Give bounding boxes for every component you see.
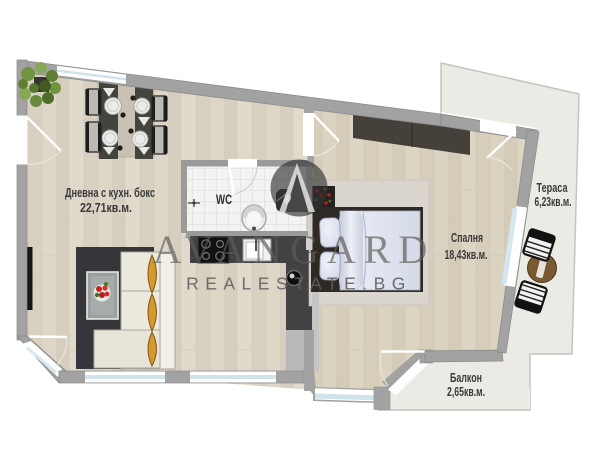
svg-text:WC: WC [216,191,232,207]
svg-text:18,43кв.м.: 18,43кв.м. [445,248,488,262]
svg-text:2,65кв.м.: 2,65кв.м. [447,385,485,399]
svg-text:6,23кв.м.: 6,23кв.м. [535,195,572,209]
svg-text:AVANGARD: AVANGARD [153,227,436,272]
svg-text:Балкон: Балкон [450,371,482,385]
svg-text:Спалня: Спалня [451,231,483,245]
svg-text:22,71кв.м.: 22,71кв.м. [80,201,132,215]
svg-text:Дневна с кухн. бокс: Дневна с кухн. бокс [65,186,155,200]
svg-text:Тераса: Тераса [537,181,569,195]
svg-text:REALESTATE.BG: REALESTATE.BG [186,274,412,294]
